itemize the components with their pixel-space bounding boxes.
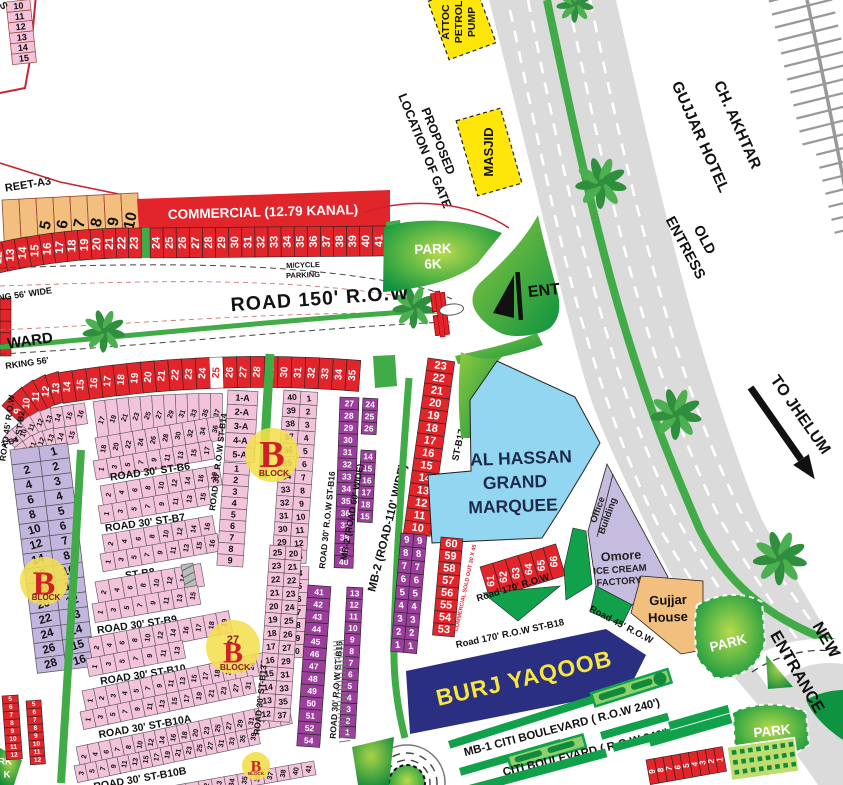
- svg-text:AL HASSAN: AL HASSAN: [470, 446, 572, 470]
- svg-text:54: 54: [438, 611, 452, 624]
- svg-text:12: 12: [349, 600, 359, 610]
- svg-text:34: 34: [282, 235, 294, 248]
- svg-text:28: 28: [203, 236, 215, 248]
- svg-text:22: 22: [170, 368, 182, 380]
- svg-text:22: 22: [270, 574, 281, 585]
- svg-text:12: 12: [15, 21, 26, 32]
- svg-text:23: 23: [434, 359, 448, 373]
- svg-text:16: 16: [362, 475, 372, 485]
- svg-text:15: 15: [75, 379, 87, 391]
- svg-text:31: 31: [280, 669, 291, 680]
- svg-text:1: 1: [234, 464, 240, 474]
- svg-text:52: 52: [304, 723, 314, 734]
- svg-text:33: 33: [342, 471, 352, 481]
- svg-text:15: 15: [141, 755, 151, 764]
- svg-text:26: 26: [283, 629, 294, 640]
- svg-text:18: 18: [116, 373, 128, 385]
- svg-text:10: 10: [161, 529, 171, 538]
- svg-text:22: 22: [116, 236, 128, 249]
- svg-text:13: 13: [130, 757, 140, 766]
- svg-text:31: 31: [343, 447, 353, 457]
- svg-text:7: 7: [414, 562, 420, 573]
- svg-text:15: 15: [420, 459, 434, 473]
- svg-text:27: 27: [344, 398, 354, 408]
- svg-text:40: 40: [287, 392, 298, 403]
- svg-text:25: 25: [194, 743, 204, 752]
- svg-text:29: 29: [281, 656, 292, 667]
- svg-text:13: 13: [177, 676, 187, 685]
- svg-text:23: 23: [285, 588, 296, 599]
- svg-text:25: 25: [213, 724, 223, 733]
- svg-text:17: 17: [361, 487, 371, 497]
- svg-text:22: 22: [286, 575, 297, 586]
- svg-text:11: 11: [413, 509, 426, 523]
- svg-text:27: 27: [224, 721, 234, 730]
- svg-text:4: 4: [347, 692, 353, 702]
- svg-text:13: 13: [174, 594, 184, 603]
- svg-text:18: 18: [66, 239, 78, 253]
- svg-text:27: 27: [238, 366, 250, 378]
- svg-text:23: 23: [184, 746, 194, 755]
- svg-text:45: 45: [311, 636, 321, 647]
- svg-text:11: 11: [295, 525, 305, 536]
- svg-text:3: 3: [232, 486, 238, 496]
- svg-text:21: 21: [156, 369, 168, 381]
- svg-text:47: 47: [309, 661, 319, 672]
- svg-text:BLOCK: BLOCK: [220, 662, 251, 672]
- svg-text:10: 10: [135, 740, 145, 749]
- svg-text:21: 21: [269, 587, 280, 598]
- svg-text:53: 53: [437, 623, 450, 636]
- svg-text:11: 11: [166, 679, 176, 688]
- svg-text:37: 37: [277, 710, 288, 721]
- svg-text:19: 19: [79, 238, 91, 251]
- svg-text:43: 43: [312, 611, 322, 622]
- svg-text:12: 12: [174, 527, 184, 536]
- svg-text:10: 10: [33, 741, 41, 749]
- svg-text:11: 11: [14, 11, 25, 22]
- svg-text:3-A: 3-A: [234, 421, 250, 432]
- svg-text:ATTOC: ATTOC: [440, 4, 452, 40]
- svg-text:21: 21: [206, 689, 216, 698]
- svg-text:11: 11: [119, 760, 129, 769]
- svg-text:29: 29: [235, 719, 245, 728]
- svg-text:60: 60: [445, 538, 458, 551]
- svg-text:20: 20: [428, 397, 442, 411]
- svg-text:17: 17: [200, 671, 210, 680]
- svg-text:25: 25: [211, 366, 223, 378]
- svg-text:14: 14: [17, 246, 29, 260]
- svg-text:21: 21: [430, 384, 444, 398]
- svg-text:5: 5: [347, 681, 353, 691]
- svg-text:15: 15: [360, 511, 370, 521]
- svg-text:30: 30: [278, 523, 289, 534]
- svg-text:8: 8: [228, 544, 234, 554]
- svg-text:15: 15: [18, 53, 29, 64]
- svg-text:66: 66: [548, 555, 560, 567]
- svg-text:41: 41: [373, 235, 385, 247]
- svg-text:9: 9: [227, 555, 233, 565]
- svg-text:Omore: Omore: [600, 548, 641, 565]
- svg-text:34: 34: [197, 426, 207, 435]
- svg-text:19: 19: [194, 691, 204, 700]
- svg-text:20: 20: [269, 601, 280, 612]
- svg-text:26: 26: [364, 423, 374, 433]
- svg-text:14: 14: [17, 42, 28, 53]
- svg-text:2: 2: [233, 475, 239, 485]
- svg-text:61: 61: [485, 575, 497, 587]
- svg-text:11: 11: [170, 497, 180, 506]
- svg-text:22: 22: [123, 440, 133, 449]
- svg-text:19: 19: [268, 614, 279, 625]
- svg-text:18: 18: [179, 731, 189, 740]
- svg-text:BLOCK: BLOCK: [32, 593, 61, 602]
- svg-text:6: 6: [348, 669, 354, 679]
- svg-text:29: 29: [216, 236, 228, 248]
- svg-text:14: 14: [168, 628, 178, 637]
- svg-text:GRAND: GRAND: [483, 471, 548, 493]
- svg-text:13: 13: [175, 451, 185, 460]
- svg-text:12: 12: [414, 497, 428, 511]
- svg-text:32: 32: [255, 236, 267, 248]
- svg-text:22: 22: [432, 372, 446, 386]
- svg-text:14: 14: [62, 381, 74, 393]
- svg-text:6: 6: [400, 574, 406, 585]
- svg-text:21: 21: [173, 748, 183, 757]
- svg-text:20: 20: [111, 442, 121, 451]
- svg-text:11: 11: [145, 702, 155, 711]
- svg-text:6K: 6K: [424, 256, 442, 272]
- svg-text:20: 20: [143, 371, 155, 383]
- svg-text:46: 46: [310, 649, 320, 660]
- svg-text:32: 32: [306, 367, 318, 379]
- svg-text:38: 38: [278, 769, 288, 778]
- svg-text:7: 7: [348, 658, 354, 668]
- svg-text:9: 9: [350, 634, 356, 644]
- svg-text:17: 17: [266, 641, 277, 652]
- svg-text:19: 19: [162, 750, 172, 759]
- svg-text:15: 15: [194, 541, 204, 550]
- svg-text:33: 33: [279, 683, 290, 694]
- svg-text:23: 23: [202, 726, 212, 735]
- svg-text:11: 11: [162, 453, 172, 462]
- svg-text:MASJID: MASJID: [481, 127, 496, 176]
- svg-text:28: 28: [344, 410, 354, 420]
- svg-text:26: 26: [177, 237, 189, 249]
- svg-text:23: 23: [183, 368, 195, 380]
- svg-text:36: 36: [308, 235, 320, 247]
- svg-text:33: 33: [268, 236, 280, 248]
- svg-text:13: 13: [172, 646, 182, 655]
- svg-text:32: 32: [279, 497, 290, 508]
- svg-text:5: 5: [231, 509, 237, 519]
- svg-text:35: 35: [295, 236, 307, 248]
- svg-text:21: 21: [287, 561, 298, 572]
- svg-text:58: 58: [443, 562, 456, 575]
- svg-text:11: 11: [158, 649, 168, 658]
- svg-text:30: 30: [279, 366, 291, 378]
- svg-text:34: 34: [333, 368, 345, 380]
- svg-text:13: 13: [16, 32, 27, 43]
- svg-text:35: 35: [278, 696, 289, 707]
- svg-text:MARQUEE: MARQUEE: [468, 494, 558, 517]
- svg-text:3: 3: [397, 613, 403, 624]
- svg-text:15: 15: [169, 697, 179, 706]
- svg-text:54: 54: [304, 735, 314, 746]
- svg-text:35: 35: [347, 369, 359, 381]
- svg-text:23: 23: [271, 560, 282, 571]
- svg-text:28: 28: [252, 365, 264, 377]
- svg-text:16: 16: [207, 539, 217, 548]
- svg-text:18: 18: [267, 628, 278, 639]
- svg-text:12: 12: [146, 738, 156, 747]
- svg-text:4-A: 4-A: [233, 435, 249, 446]
- svg-text:27: 27: [190, 236, 202, 248]
- svg-text:9: 9: [417, 536, 423, 547]
- svg-text:10: 10: [411, 522, 425, 536]
- svg-text:64: 64: [523, 563, 535, 575]
- svg-text:42: 42: [313, 599, 323, 610]
- svg-text:12: 12: [10, 752, 18, 760]
- svg-text:27: 27: [231, 683, 241, 692]
- svg-text:10: 10: [142, 633, 152, 642]
- svg-text:11: 11: [349, 611, 359, 621]
- svg-text:23: 23: [129, 236, 141, 249]
- svg-text:39: 39: [347, 235, 359, 247]
- svg-text:13: 13: [350, 588, 360, 598]
- svg-text:25: 25: [164, 237, 176, 249]
- svg-text:10: 10: [151, 578, 161, 587]
- svg-text:13: 13: [181, 543, 191, 552]
- svg-text:2-A: 2-A: [234, 407, 250, 418]
- svg-text:17: 17: [423, 434, 437, 448]
- svg-text:23: 23: [219, 686, 229, 695]
- svg-text:20: 20: [288, 548, 299, 559]
- svg-text:PARKING: PARKING: [286, 270, 320, 280]
- svg-text:38: 38: [334, 235, 346, 247]
- svg-text:10: 10: [295, 511, 306, 522]
- svg-text:11: 11: [33, 749, 41, 756]
- svg-text:33: 33: [280, 484, 291, 495]
- svg-text:15: 15: [29, 244, 41, 258]
- svg-text:13: 13: [416, 484, 430, 498]
- svg-text:18: 18: [425, 422, 439, 436]
- svg-text:PUMP: PUMP: [466, 7, 478, 37]
- svg-text:24: 24: [135, 437, 145, 446]
- svg-text:18: 18: [98, 444, 108, 453]
- svg-text:3: 3: [410, 614, 416, 625]
- svg-text:15: 15: [189, 674, 199, 683]
- svg-text:17: 17: [102, 375, 114, 387]
- svg-text:25: 25: [365, 411, 375, 421]
- svg-text:12: 12: [164, 576, 174, 585]
- svg-text:2: 2: [396, 626, 402, 637]
- svg-text:37: 37: [321, 235, 333, 247]
- svg-text:4: 4: [231, 498, 237, 508]
- svg-text:17: 17: [182, 694, 192, 703]
- svg-text:15: 15: [187, 591, 197, 600]
- svg-text:1: 1: [716, 757, 725, 762]
- svg-text:16: 16: [181, 626, 191, 635]
- svg-text:BLOCK: BLOCK: [248, 771, 265, 776]
- svg-text:17: 17: [151, 753, 161, 762]
- svg-text:57: 57: [442, 574, 455, 587]
- svg-text:27: 27: [205, 741, 215, 750]
- svg-text:M/CYCLE: M/CYCLE: [286, 260, 320, 270]
- svg-text:33: 33: [320, 367, 332, 379]
- svg-text:30: 30: [229, 236, 241, 248]
- svg-text:62: 62: [498, 571, 510, 583]
- svg-text:21: 21: [104, 236, 116, 250]
- svg-text:48: 48: [308, 673, 318, 684]
- svg-text:17: 17: [54, 241, 66, 254]
- svg-text:8: 8: [416, 549, 422, 560]
- svg-text:29: 29: [344, 423, 354, 433]
- svg-text:65: 65: [535, 559, 547, 571]
- svg-text:27: 27: [282, 642, 293, 653]
- svg-text:38: 38: [285, 418, 296, 429]
- svg-text:Gujjar: Gujjar: [649, 592, 687, 608]
- svg-text:40: 40: [360, 235, 372, 247]
- svg-text:10: 10: [13, 0, 24, 11]
- svg-text:7: 7: [229, 532, 235, 542]
- svg-text:24: 24: [151, 236, 163, 249]
- svg-text:12: 12: [169, 478, 179, 487]
- svg-text:17: 17: [202, 446, 212, 455]
- svg-text:10: 10: [348, 623, 358, 633]
- svg-text:14: 14: [182, 476, 192, 485]
- svg-text:11: 11: [168, 546, 178, 555]
- svg-text:33: 33: [227, 737, 237, 746]
- svg-text:31: 31: [216, 739, 226, 748]
- svg-text:15: 15: [198, 492, 208, 501]
- svg-text:6: 6: [230, 521, 236, 531]
- svg-text:11: 11: [161, 596, 171, 605]
- svg-text:44: 44: [311, 624, 321, 635]
- svg-text:31: 31: [279, 510, 290, 521]
- svg-text:28: 28: [160, 433, 170, 442]
- svg-text:8: 8: [349, 646, 355, 656]
- svg-text:K: K: [4, 770, 11, 781]
- svg-text:41: 41: [314, 587, 324, 598]
- svg-text:2: 2: [409, 628, 415, 639]
- svg-text:40: 40: [291, 766, 301, 775]
- svg-text:59: 59: [444, 550, 457, 563]
- svg-text:ENT: ENT: [527, 281, 561, 301]
- svg-text:17: 17: [193, 623, 203, 632]
- svg-text:13: 13: [5, 249, 17, 262]
- svg-text:24: 24: [284, 602, 295, 613]
- svg-text:11: 11: [10, 744, 18, 751]
- svg-text:BLOCK: BLOCK: [259, 468, 290, 478]
- svg-text:51: 51: [305, 710, 315, 721]
- svg-text:6: 6: [413, 575, 419, 586]
- svg-text:1-A: 1-A: [235, 393, 251, 404]
- svg-text:31: 31: [292, 366, 304, 378]
- svg-text:63: 63: [510, 567, 522, 579]
- svg-text:39: 39: [286, 405, 297, 416]
- svg-text:20: 20: [91, 237, 103, 250]
- svg-text:PETROL: PETROL: [453, 0, 465, 43]
- svg-text:14: 14: [157, 735, 167, 744]
- svg-text:13: 13: [157, 699, 167, 708]
- svg-text:House: House: [648, 609, 688, 625]
- svg-text:24: 24: [197, 367, 209, 379]
- svg-text:24: 24: [365, 399, 375, 409]
- svg-text:20: 20: [190, 728, 200, 737]
- svg-text:16: 16: [196, 474, 206, 483]
- svg-text:12: 12: [34, 757, 42, 765]
- svg-text:49: 49: [307, 686, 317, 697]
- svg-text:32: 32: [185, 429, 195, 438]
- svg-text:30: 30: [173, 431, 183, 440]
- svg-text:55: 55: [439, 599, 452, 612]
- svg-text:35: 35: [238, 734, 248, 743]
- svg-text:25: 25: [284, 615, 295, 626]
- svg-text:10: 10: [9, 736, 17, 744]
- svg-text:8: 8: [403, 548, 409, 559]
- svg-text:10: 10: [156, 481, 166, 490]
- svg-text:31: 31: [243, 681, 253, 690]
- svg-text:19: 19: [427, 409, 441, 423]
- svg-text:41: 41: [303, 764, 313, 773]
- svg-text:56: 56: [441, 587, 454, 600]
- svg-text:32: 32: [342, 459, 352, 469]
- svg-text:15: 15: [188, 448, 198, 457]
- svg-text:14: 14: [363, 451, 373, 461]
- svg-text:16: 16: [89, 377, 101, 389]
- svg-text:13: 13: [184, 494, 194, 503]
- svg-text:9: 9: [404, 534, 410, 545]
- svg-text:30: 30: [343, 435, 353, 445]
- svg-text:31: 31: [242, 236, 254, 248]
- svg-text:12: 12: [155, 631, 165, 640]
- svg-text:26: 26: [148, 435, 158, 444]
- svg-text:PARK: PARK: [414, 241, 452, 257]
- svg-text:50: 50: [306, 698, 316, 709]
- svg-text:7: 7: [401, 561, 407, 572]
- svg-text:19: 19: [129, 372, 141, 384]
- svg-text:16: 16: [421, 447, 435, 461]
- svg-text:16: 16: [202, 522, 212, 531]
- svg-text:14: 14: [188, 524, 198, 533]
- svg-text:16: 16: [168, 733, 178, 742]
- svg-text:25: 25: [272, 547, 283, 558]
- svg-text:26: 26: [224, 366, 236, 378]
- svg-text:16: 16: [265, 655, 276, 666]
- svg-text:16: 16: [42, 242, 54, 255]
- svg-text:18: 18: [361, 499, 371, 509]
